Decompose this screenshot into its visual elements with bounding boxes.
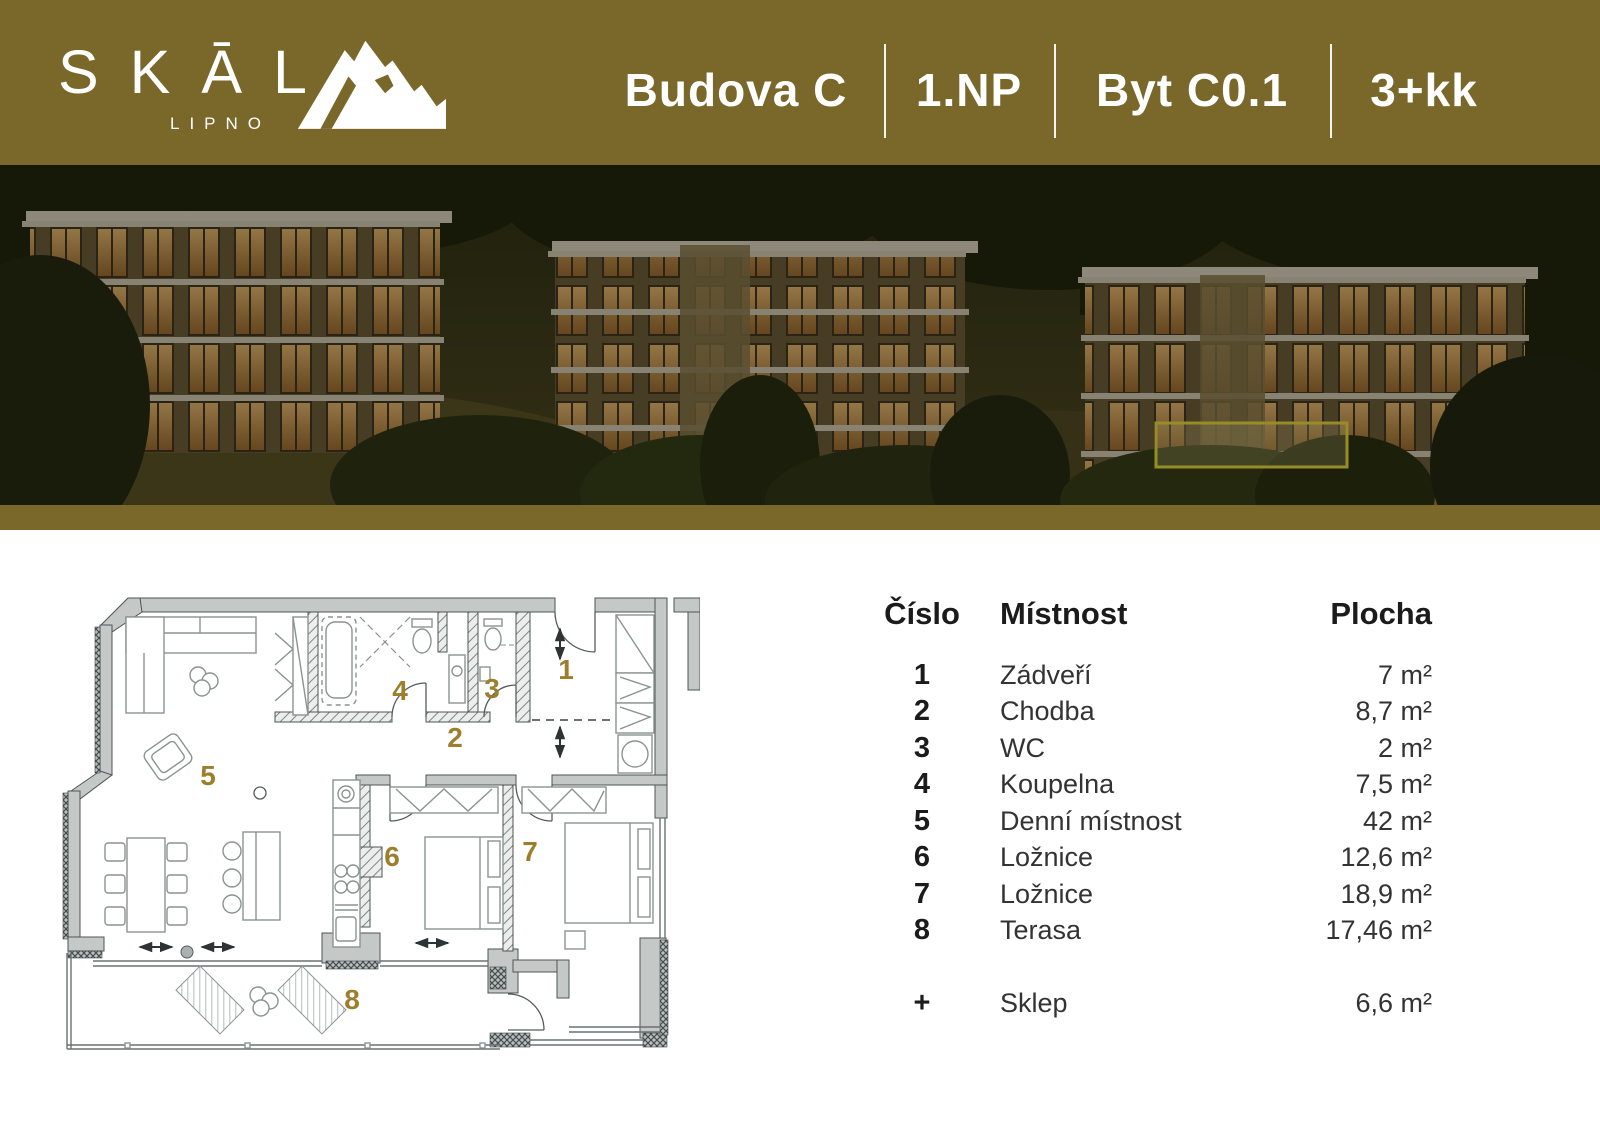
wc xyxy=(480,619,514,681)
table-row: 4 Koupelna 7,5 m² xyxy=(880,767,1432,804)
room-label-4: 4 xyxy=(392,675,408,706)
header-number: Číslo xyxy=(880,596,964,632)
room-label-5: 5 xyxy=(200,760,216,791)
bedroom-7 xyxy=(522,787,653,949)
row-room: Denní místnost xyxy=(964,806,1363,837)
plant xyxy=(250,987,278,1016)
toilet xyxy=(412,619,432,653)
room-label-3: 3 xyxy=(484,673,500,704)
row-area: 7 m² xyxy=(1378,660,1432,691)
title-floor: 1.NP xyxy=(916,63,1022,117)
row-room: Chodba xyxy=(964,696,1355,727)
room-label-8: 8 xyxy=(344,984,360,1015)
row-area: 17,46 m² xyxy=(1325,915,1432,946)
row-number: 6 xyxy=(880,841,964,874)
header-room: Místnost xyxy=(964,596,1330,632)
room-label-1: 1 xyxy=(558,654,574,685)
row-area: 6,6 m² xyxy=(1355,988,1432,1019)
entry-room xyxy=(532,615,654,773)
table-row: 2 Chodba 8,7 m² xyxy=(880,694,1432,731)
table-row: 6 Ložnice 12,6 m² xyxy=(880,840,1432,877)
terrace-railing xyxy=(67,953,500,1049)
row-area: 12,6 m² xyxy=(1340,842,1432,873)
mountain-icon xyxy=(296,34,446,130)
room-label-7: 7 xyxy=(522,836,538,867)
bathroom xyxy=(275,617,465,715)
title-apartment: Byt C0.1 xyxy=(1096,63,1288,117)
table-row: 1 Zádveří 7 m² xyxy=(880,657,1432,694)
room-label-6: 6 xyxy=(384,841,400,872)
row-room: Ložnice xyxy=(964,879,1340,910)
lounger xyxy=(176,966,244,1034)
row-number: 5 xyxy=(880,805,964,838)
hero-rendering xyxy=(0,165,1600,505)
title-divider xyxy=(884,44,886,138)
ceiling-light xyxy=(254,787,266,799)
table-row-cellar: + Sklep 6,6 m² xyxy=(880,985,1432,1022)
row-area: 18,9 m² xyxy=(1340,879,1432,910)
brand-logo-sub: LIPNO xyxy=(170,115,271,132)
title-layout: 3+kk xyxy=(1370,63,1478,117)
row-room: Koupelna xyxy=(964,769,1355,800)
row-number: 7 xyxy=(880,878,964,911)
row-area: 2 m² xyxy=(1378,733,1432,764)
row-room: Zádveří xyxy=(964,660,1378,691)
table-row: 8 Terasa 17,46 m² xyxy=(880,913,1432,950)
row-number: 2 xyxy=(880,695,964,728)
row-number: 3 xyxy=(880,732,964,765)
title-building: Budova C xyxy=(625,63,848,117)
row-area: 8,7 m² xyxy=(1355,696,1432,727)
row-number: 1 xyxy=(880,659,964,692)
room-table: Číslo Místnost Plocha 1 Zádveří 7 m² 2 C… xyxy=(880,596,1432,1022)
lounger xyxy=(278,966,346,1034)
table-row: 7 Ložnice 18,9 m² xyxy=(880,876,1432,913)
title-divider xyxy=(1054,44,1056,138)
table-body: 1 Zádveří 7 m² 2 Chodba 8,7 m² 3 WC 2 m²… xyxy=(880,657,1432,1022)
divider-band xyxy=(0,505,1600,530)
dining-table xyxy=(127,838,165,932)
row-number: 8 xyxy=(880,914,964,947)
header-band: SKĀL LIPNO Budova C 1.NP Byt C0.1 3+kk xyxy=(0,0,1600,165)
row-number: + xyxy=(880,987,964,1020)
row-room: Sklep xyxy=(964,988,1355,1019)
door-knob xyxy=(181,946,193,958)
kitchen-island xyxy=(243,832,280,920)
bedroom-6 xyxy=(390,787,503,929)
shower-marks xyxy=(360,617,410,667)
header-area: Plocha xyxy=(1330,596,1432,632)
row-room: WC xyxy=(964,733,1378,764)
row-room: Terasa xyxy=(964,915,1325,946)
table-row: 5 Denní místnost 42 m² xyxy=(880,803,1432,840)
row-number: 4 xyxy=(880,768,964,801)
title-divider xyxy=(1330,44,1332,138)
table-header: Číslo Místnost Plocha xyxy=(880,596,1432,632)
row-area: 7,5 m² xyxy=(1355,769,1432,800)
armchair xyxy=(142,732,194,783)
kitchen-counter xyxy=(333,780,360,947)
bar-stools xyxy=(223,842,241,913)
floor-plan: 1 2 3 4 5 6 7 8 xyxy=(60,575,700,1075)
vanity xyxy=(449,655,465,703)
room-label-2: 2 xyxy=(447,722,463,753)
row-area: 42 m² xyxy=(1363,806,1432,837)
plant xyxy=(190,667,218,696)
row-room: Ložnice xyxy=(964,842,1340,873)
terrace xyxy=(176,966,346,1034)
hero-overlay xyxy=(0,165,1600,505)
table-row: 3 WC 2 m² xyxy=(880,730,1432,767)
